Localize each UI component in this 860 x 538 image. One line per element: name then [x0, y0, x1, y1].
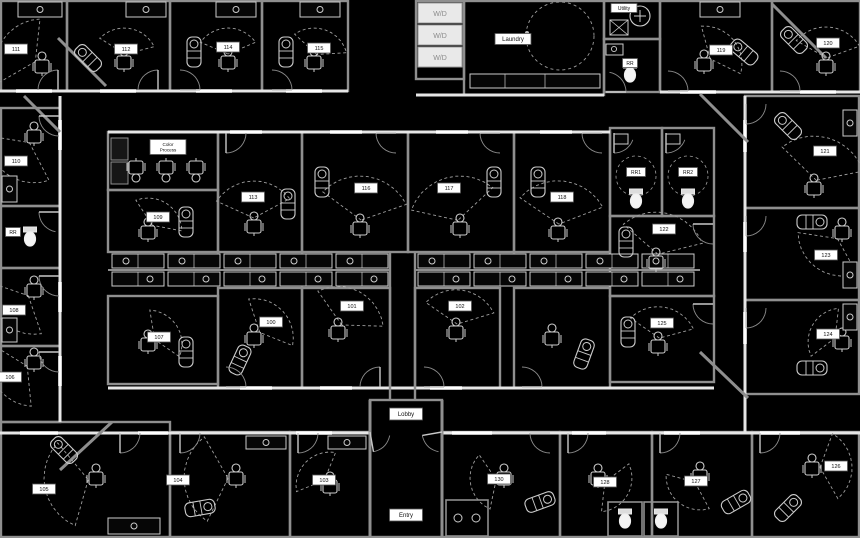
- suite-number: 107: [154, 335, 163, 341]
- entry-text: Entry: [399, 513, 413, 519]
- suite-label-103: 103: [313, 475, 336, 485]
- suite-label-118: 118: [551, 192, 574, 202]
- suite-number: 119: [717, 48, 726, 54]
- svg-text:Process: Process: [160, 148, 177, 153]
- counter: [18, 2, 62, 17]
- suite-number: 104: [173, 478, 182, 484]
- svg-text:Color: Color: [163, 142, 174, 147]
- washer-dryer-label: W/D: [433, 33, 447, 40]
- suite-label-117: 117: [438, 183, 461, 193]
- suite-number: 113: [249, 195, 258, 201]
- suite-number: 103: [319, 478, 328, 484]
- suite-label-116: 116: [355, 183, 378, 193]
- wall-rect: [24, 227, 37, 232]
- suite-number: 126: [831, 464, 840, 470]
- suite-label-115: 115: [308, 43, 331, 53]
- toilet-icon: [630, 189, 643, 208]
- suite-number: 125: [657, 321, 666, 327]
- counter: [126, 2, 166, 17]
- suite-label-124: 124: [817, 329, 840, 339]
- suite-number: 115: [315, 46, 324, 52]
- restroom-top-label: RR: [623, 59, 638, 68]
- suite-number: 130: [494, 477, 503, 483]
- floor-plan: 1111121141151191201101081061051041031301…: [0, 0, 860, 538]
- suite-label-110: 110: [5, 156, 28, 166]
- suite-label-128: 128: [594, 477, 617, 487]
- suite-label-125: 125: [651, 318, 674, 328]
- suite-label-114: 114: [217, 42, 240, 52]
- washer-dryer-label: W/D: [433, 11, 447, 18]
- suite-label-126: 126: [825, 461, 848, 471]
- color-process-label: ColorProcess: [150, 140, 186, 155]
- toilet-icon: [619, 509, 632, 528]
- suite-number: 124: [823, 332, 832, 338]
- processor-unit: [111, 162, 128, 184]
- wall-rect: [655, 509, 668, 514]
- utility-text: Utility: [618, 6, 631, 12]
- suite-label-105: 105: [33, 484, 56, 494]
- wall-rect: [630, 189, 643, 194]
- suite-label-119: 119: [710, 45, 733, 55]
- suite-label-102: 102: [449, 301, 472, 311]
- suite-number: 102: [455, 304, 464, 310]
- restroom-top-text: RR: [626, 61, 634, 67]
- restroom-2-text: RR2: [683, 170, 693, 176]
- restroom-1-text: RR1: [631, 170, 641, 176]
- laundry-label: Laundry: [495, 34, 531, 45]
- floor-plan-canvas: 1111121141151191201101081061051041031301…: [0, 0, 860, 538]
- suite-label-113: 113: [242, 192, 265, 202]
- counter: [2, 176, 17, 202]
- wall-rect: [682, 189, 695, 194]
- restroom-1-label: RR1: [627, 168, 646, 177]
- suite-number: 127: [691, 479, 700, 485]
- counter: [300, 2, 340, 17]
- laundry-text: Laundry: [502, 37, 524, 43]
- restroom-left-label: RR: [6, 228, 21, 237]
- lobby-label: Lobby: [390, 408, 423, 420]
- suite-number: 114: [224, 45, 233, 51]
- sink-counter: [614, 134, 628, 144]
- counter: [700, 2, 740, 17]
- washer-dryer-label: W/D: [433, 55, 447, 62]
- suite-label-127: 127: [685, 476, 708, 486]
- counter: [843, 110, 857, 136]
- entry-label: Entry: [390, 509, 423, 521]
- suite-label-101: 101: [341, 301, 364, 311]
- suite-number: 105: [39, 487, 48, 493]
- counter: [108, 518, 160, 534]
- toilet-icon: [24, 227, 37, 246]
- counter: [843, 262, 857, 288]
- suite-number: 106: [5, 375, 14, 381]
- suite-label-100: 100: [260, 317, 283, 327]
- counter: [2, 318, 17, 342]
- suite-number: 121: [820, 149, 829, 155]
- counter: [843, 304, 857, 330]
- suite-label-122: 122: [653, 224, 676, 234]
- suite-label-109: 109: [147, 212, 170, 222]
- suite-number: 123: [821, 253, 830, 259]
- suite-number: 120: [823, 41, 832, 47]
- lobby-text: Lobby: [398, 412, 414, 418]
- processor-unit: [111, 138, 128, 160]
- toilet-icon: [655, 509, 668, 528]
- suite-label-123: 123: [815, 250, 838, 260]
- suite-number: 101: [347, 304, 356, 310]
- wall-rect: [619, 509, 632, 514]
- suite-number: 117: [445, 186, 454, 192]
- suite-number: 112: [122, 47, 131, 53]
- suite-label-107: 107: [148, 332, 171, 342]
- suite-number: 111: [12, 47, 20, 53]
- restroom-2-label: RR2: [679, 168, 698, 177]
- restroom-left-text: RR: [9, 230, 17, 236]
- toilet-icon: [682, 189, 695, 208]
- suite-label-121: 121: [814, 146, 837, 156]
- counter: [216, 2, 256, 17]
- suite-label-104: 104: [167, 475, 190, 485]
- suite-number: 100: [266, 320, 275, 326]
- folding-counter: [470, 74, 600, 88]
- suite-number: 109: [153, 215, 162, 221]
- suite-label-111: 111: [5, 44, 28, 54]
- counter: [246, 436, 286, 449]
- suite-number: 118: [558, 195, 567, 201]
- suite-number: 128: [600, 480, 609, 486]
- suite-label-106: 106: [0, 372, 22, 382]
- suite-label-120: 120: [817, 38, 840, 48]
- sink-counter: [606, 44, 623, 55]
- counter: [328, 436, 366, 449]
- suite-number: 122: [659, 227, 668, 233]
- suite-label-130: 130: [488, 474, 511, 484]
- suite-label-108: 108: [3, 305, 26, 315]
- sink-counter: [666, 134, 680, 144]
- suite-number: 110: [12, 159, 21, 165]
- suite-number: 116: [362, 186, 371, 192]
- utility-label: Utility: [611, 4, 637, 13]
- suite-number: 108: [9, 308, 18, 314]
- suite-label-112: 112: [115, 44, 138, 54]
